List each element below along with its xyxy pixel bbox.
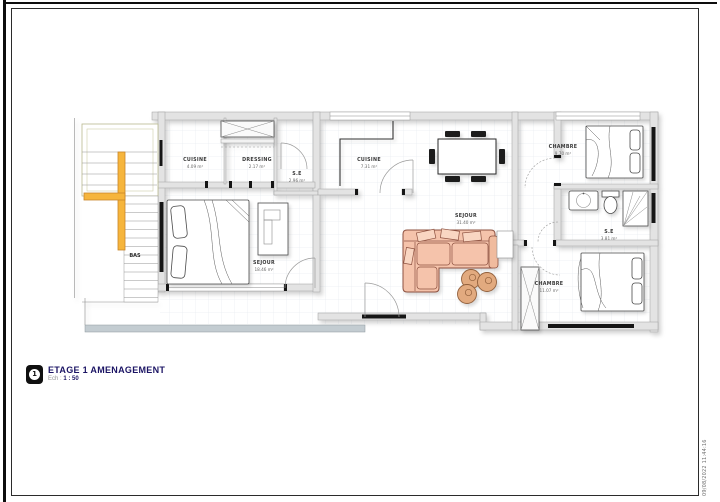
window-cuisine-left-icon: [160, 140, 163, 166]
stair-rail-horizontal: [84, 193, 125, 200]
room-area-se-1: 2.96 m²: [289, 178, 306, 183]
title-block: 1 ETAGE 1 AMENAGEMENT Ech : 1 : 50: [26, 365, 165, 384]
wardrobe-dressing: [221, 121, 274, 147]
window-se-right-icon: [652, 193, 656, 223]
scale-value: 1 : 50: [63, 376, 78, 382]
sliding-door-living-icon: [362, 315, 406, 319]
floor-plan-drawing: BAS: [0, 0, 720, 502]
wardrobe-chambre-bottom: [521, 267, 539, 330]
room-area-sejour-2: 31.40 m²: [456, 220, 475, 225]
sheet-number: 1: [28, 368, 41, 381]
bed-chambre-bottom: [578, 253, 644, 311]
room-area-se-2: 3.81 m²: [601, 236, 618, 241]
room-label-se-2: S.E: [604, 229, 613, 235]
scale-label: Ech :: [48, 376, 62, 382]
room-label-cuisine-2: CUISINE: [357, 157, 381, 163]
plot-timestamp: 09/08/2022 11:44:16: [702, 416, 708, 496]
room-area-chambre-1: 9.70 m²: [555, 151, 572, 156]
window-chambre-bottom-icon: [548, 324, 634, 328]
window-sejour-left-icon: [160, 202, 164, 272]
bed-left-room: [167, 200, 249, 284]
room-label-sejour-2: SEJOUR: [455, 213, 477, 219]
room-label-chambre-1: CHAMBRE: [549, 144, 578, 150]
room-area-sejour-1: 18.46 m²: [254, 267, 273, 272]
balcony-parapet: [85, 325, 365, 332]
page-title: ETAGE 1 AMENAGEMENT: [48, 365, 165, 375]
room-label-sejour-1: SEJOUR: [253, 260, 275, 266]
room-label-dressing: DRESSING: [242, 157, 272, 163]
room-label-cuisine-1: CUISINE: [183, 157, 207, 163]
room-area-cuisine-1: 4.09 m²: [187, 164, 204, 169]
room-area-chambre-2: 11.07 m²: [539, 288, 558, 293]
desk-left-room: [258, 203, 288, 255]
floor-plan-sheet: BAS: [0, 0, 720, 502]
room-area-cuisine-2: 7.31 m²: [361, 164, 378, 169]
stairs-direction-label: BAS: [129, 253, 141, 259]
window-chambre-top-icon: [652, 127, 656, 181]
sheet-number-icon: 1: [26, 365, 43, 384]
room-area-dressing: 2.17 m²: [249, 164, 266, 169]
side-table: [497, 231, 513, 258]
room-label-chambre-2: CHAMBRE: [535, 281, 564, 287]
room-label-se-1: S.E: [292, 171, 301, 177]
stair-rail-vertical: [118, 152, 125, 250]
bed-chambre-top: [586, 126, 643, 178]
dining-table-set: [429, 131, 505, 182]
staircase: BAS: [82, 124, 158, 302]
scale-line: Ech : 1 : 50: [48, 376, 165, 382]
